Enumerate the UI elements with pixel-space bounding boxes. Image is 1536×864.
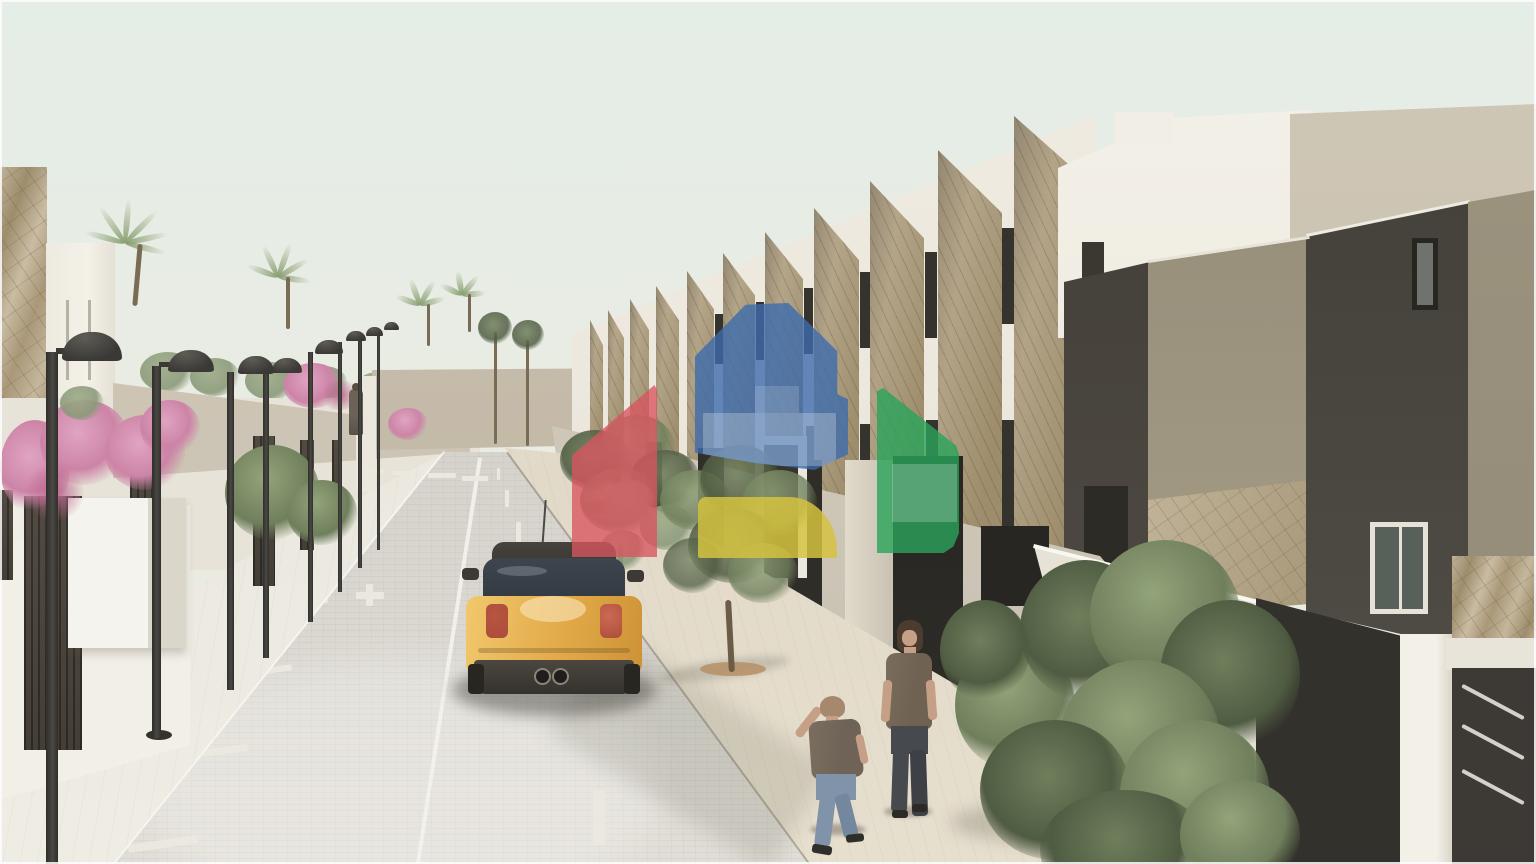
glass-door <box>1370 522 1428 614</box>
stair-rail-streak <box>1461 769 1525 805</box>
car-bumper-line <box>478 648 630 653</box>
woman-leg <box>891 750 909 813</box>
car-trunk-oval <box>520 596 586 622</box>
child-pedestrian <box>796 690 876 835</box>
car-lower-bumper <box>474 660 634 694</box>
lamp-pole <box>227 372 234 690</box>
child-hair <box>820 696 845 718</box>
dark-window-slot <box>1412 238 1438 310</box>
road-cross-marking <box>366 584 373 606</box>
lamp-pole <box>152 366 161 738</box>
lamp-head <box>366 327 383 336</box>
render-canvas <box>0 0 1536 864</box>
bougainvillea <box>140 400 200 455</box>
townhouse-window <box>1002 228 1014 324</box>
palm-trunk <box>468 294 471 332</box>
parking-bay-line <box>360 469 384 473</box>
round-bush <box>287 480 357 545</box>
white-ledge <box>1446 638 1536 670</box>
stair-rail-streak <box>1461 724 1525 760</box>
car-taillight <box>486 604 508 638</box>
garden-gate <box>0 490 13 580</box>
townhouse-window <box>925 252 937 338</box>
center-line-dash <box>593 790 605 845</box>
window-reflection <box>497 566 547 576</box>
lamp-pole <box>358 336 362 568</box>
lamp-head <box>346 331 366 341</box>
center-line-dash <box>497 468 500 480</box>
slender-tree-crown <box>512 320 544 350</box>
slender-tree-trunk <box>494 332 497 444</box>
car-exhaust-pipe <box>534 668 551 685</box>
center-line-dash <box>505 490 509 507</box>
car-mirror <box>627 570 644 582</box>
logo-blue-inner-block <box>755 386 799 414</box>
woman-shoe <box>892 810 908 818</box>
planter-greenery <box>60 386 104 420</box>
street-scene <box>0 0 1536 864</box>
car-taillight <box>600 604 622 638</box>
car-exhaust-pipe <box>552 668 569 685</box>
lamp-pole <box>46 352 58 864</box>
palm-trunk <box>427 304 430 346</box>
car-mirror <box>462 568 479 580</box>
lamp-pole <box>338 342 342 592</box>
slender-tree-trunk <box>526 340 529 446</box>
door-mullion <box>1399 527 1402 609</box>
townhouse-window <box>860 272 870 348</box>
white-planter-box <box>68 498 186 648</box>
parking-bay-line <box>462 476 488 481</box>
parking-bay-line <box>428 473 456 478</box>
palm-trunk <box>286 277 290 329</box>
logo-yellow-house-shape <box>698 497 837 558</box>
car-wheel <box>624 664 640 694</box>
tree-foliage <box>940 600 1030 700</box>
window-pane <box>1417 243 1433 305</box>
slender-tree-crown <box>478 312 512 344</box>
lamp-pole <box>308 352 313 622</box>
car-wheel <box>468 664 484 694</box>
lamp-pole <box>377 330 380 550</box>
bougainvillea-small <box>388 408 428 440</box>
white-parapet-step <box>1115 112 1173 146</box>
big-tree <box>920 520 1320 864</box>
lamp-pole <box>263 372 269 658</box>
child-shirt <box>808 718 864 779</box>
stone-column <box>1452 556 1536 642</box>
woman-face <box>902 630 917 646</box>
stair-rail-streak <box>1461 684 1525 720</box>
logo-green-inner-block <box>892 464 957 522</box>
stair-area <box>1452 668 1536 864</box>
white-pillar <box>1400 634 1452 864</box>
lamp-head <box>384 322 399 330</box>
